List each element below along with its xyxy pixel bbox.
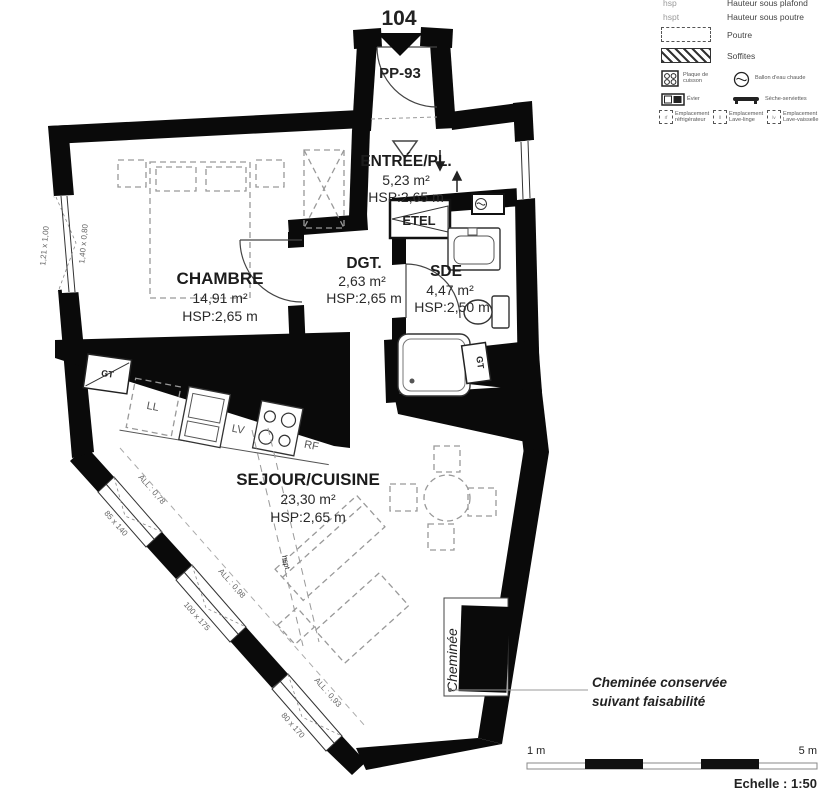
dishwasher-slot-legend-icon: lv: [767, 110, 781, 124]
sde-duct: GT: [462, 343, 491, 384]
soffit-legend-icon: [661, 48, 711, 63]
sink-legend-icon: [661, 93, 685, 106]
svg-text:ENTRÉE/PL.: ENTRÉE/PL.: [360, 153, 451, 170]
window-diag-3: ALL : 0,93 80 x 170: [272, 674, 344, 751]
dining-table: [424, 475, 470, 521]
kitchen-duct: GT: [83, 354, 131, 394]
window1-sill-label: ALL : 0,78: [137, 473, 168, 506]
svg-text:SDE: SDE: [430, 263, 462, 280]
pillow: [206, 167, 246, 191]
scale-end-label: 5 m: [799, 745, 817, 757]
svg-text:2,63 m²: 2,63 m²: [338, 273, 386, 289]
svg-text:14,91 m²: 14,91 m²: [192, 290, 248, 306]
kitchen-gt-label: GT: [101, 368, 115, 380]
room-sde: SDE 4,47 m² HSP:2,50 m: [414, 263, 489, 315]
unit-number: 104: [381, 7, 416, 30]
water-heater-legend-icon: [733, 71, 750, 88]
soffit-line: [120, 448, 365, 726]
svg-text:HSP:2,65 m: HSP:2,65 m: [182, 308, 257, 324]
window3-sill-label: ALL : 0,93: [313, 676, 344, 709]
window-right: [515, 140, 536, 200]
beam-label: hspt: [280, 554, 292, 571]
svg-text:DGT.: DGT.: [346, 255, 381, 272]
dishwasher-label: LV: [231, 423, 246, 437]
legend-label-soffites: Soffites: [727, 51, 755, 61]
legend-label-empl-ll: Emplacement Lave-linge: [729, 111, 765, 124]
legend-key-hsp: hsp: [663, 0, 677, 8]
towel-dryer-legend-icon: [731, 95, 761, 105]
etel-label: ETEL: [402, 213, 435, 228]
entrance-header: 104 PP-93: [377, 7, 423, 82]
svg-text:4,47 m²: 4,47 m²: [426, 282, 474, 298]
floor-plan-page: { "header": { "unit_number": "104", "doo…: [0, 0, 825, 800]
side-table: [278, 608, 315, 645]
fridge-slot-legend-icon: rf: [659, 110, 673, 124]
legend-label-evier: Évier: [687, 96, 700, 102]
window2-sill-label: ALL : 0,98: [217, 567, 248, 600]
window-left-dim2-label: 1,40 x 0,80: [77, 223, 89, 264]
legend-label-ballon: Ballon d'eau chaude: [755, 75, 823, 81]
window-left: 1,21 x 1,00 1,40 x 0,80: [38, 195, 89, 293]
beam-lines: [252, 428, 319, 646]
beam-legend-icon: [661, 27, 711, 42]
water-heater: [472, 194, 504, 214]
svg-text:CHAMBRE: CHAMBRE: [177, 269, 264, 288]
door-code-label: PP-93: [379, 65, 421, 82]
cooktop-legend-icon: [661, 70, 679, 87]
scale-caption: Echelle : 1:50: [734, 776, 817, 791]
svg-text:23,30 m²: 23,30 m²: [280, 491, 336, 507]
svg-text:HSP:2,65 m: HSP:2,65 m: [368, 189, 443, 205]
chair: [434, 446, 460, 472]
svg-text:HSP:2,50 m: HSP:2,50 m: [414, 299, 489, 315]
entry-door: [371, 47, 437, 158]
svg-text:HSP:2,65 m: HSP:2,65 m: [326, 290, 401, 306]
window-diag-1: ALL : 0,78 85 x 140: [98, 473, 168, 547]
annotation-line1: Cheminée conservée: [592, 675, 728, 690]
legend-key-hspt: hspt: [663, 12, 679, 22]
nightstand: [118, 160, 146, 187]
chair: [390, 484, 417, 511]
svg-text:5,23 m²: 5,23 m²: [382, 172, 430, 188]
annotation-line2: suivant faisabilité: [592, 694, 706, 709]
pillow: [156, 167, 196, 191]
wardrobe: [304, 150, 344, 228]
legend-label-hsp: Hauteur sous plafond: [727, 0, 808, 8]
svg-text:HSP:2,65 m: HSP:2,65 m: [270, 509, 345, 525]
chair: [468, 488, 496, 516]
washer-label: LL: [145, 400, 159, 414]
scale-bar: 1 m 5 m Echelle : 1:50: [527, 745, 817, 791]
cooktop-icon: [253, 401, 303, 456]
room-entree: ENTRÉE/PL. 5,23 m² HSP:2,65 m: [360, 153, 451, 205]
fridge-label: RF: [303, 439, 320, 454]
up-arrow-icon: [453, 172, 461, 180]
coffee-table: [315, 573, 408, 663]
room-dgt: DGT. 2,63 m² HSP:2,65 m: [326, 255, 401, 306]
scale-start-label: 1 m: [527, 745, 545, 757]
window-diag-2: ALL : 0,98 100 x 175: [176, 565, 248, 642]
sde-gt-label: GT: [474, 356, 486, 370]
washer-slot-legend-icon: ll: [713, 110, 727, 124]
legend-label-poutre: Poutre: [727, 30, 752, 40]
window-left-dim-label: 1,21 x 1,00: [38, 225, 50, 266]
legend-label-seche: Sèche-serviettes: [765, 96, 823, 102]
legend-label-empl-lv: Emplacement Lave-vaisselle: [783, 111, 823, 124]
etel-closet: ETEL: [390, 200, 450, 238]
nightstand: [256, 160, 284, 187]
chair: [428, 524, 454, 550]
legend-label-empl-rf: Emplacement réfrigérateur: [675, 111, 711, 124]
legend-label-cooktop: Plaque de cuisson: [683, 72, 725, 85]
svg-text:SEJOUR/CUISINE: SEJOUR/CUISINE: [236, 470, 380, 489]
shower: [398, 334, 470, 396]
legend-label-hspt: Hauteur sous poutre: [727, 12, 804, 22]
chimney-annotation: Cheminée conservée suivant faisabilité: [592, 675, 728, 709]
entrance-triangle-icon: [377, 33, 423, 56]
legend: hsp Hauteur sous plafond hspt Hauteur so…: [655, 0, 825, 140]
chimney-label: Cheminée: [444, 628, 460, 692]
